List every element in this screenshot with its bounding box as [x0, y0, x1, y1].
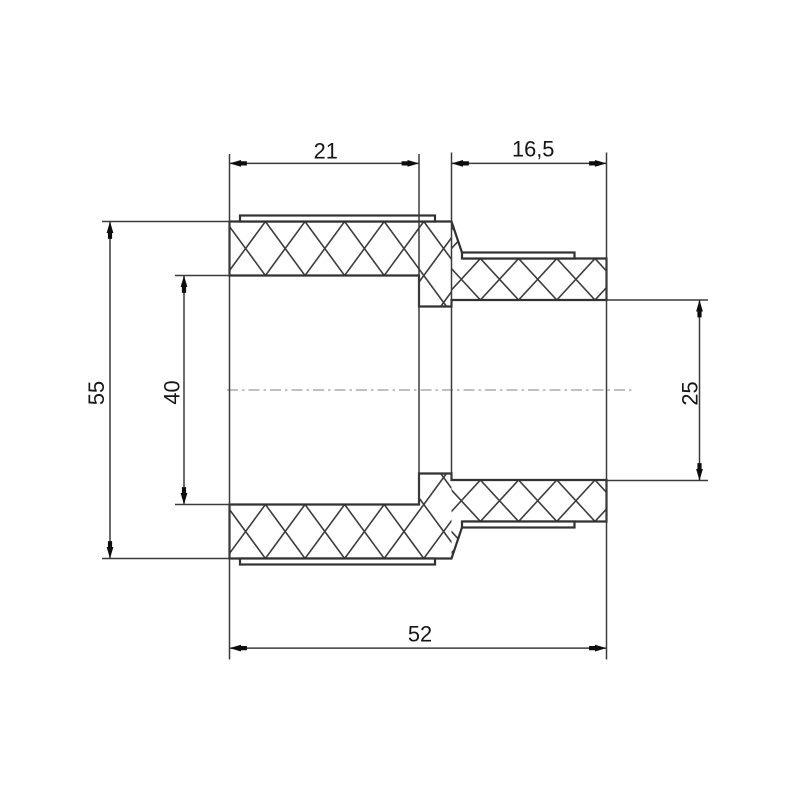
svg-text:21: 21 — [314, 138, 338, 163]
svg-text:52: 52 — [408, 622, 432, 647]
svg-text:55: 55 — [84, 381, 109, 405]
svg-text:25: 25 — [678, 381, 703, 405]
svg-text:16,5: 16,5 — [512, 137, 554, 162]
svg-text:40: 40 — [160, 380, 185, 404]
